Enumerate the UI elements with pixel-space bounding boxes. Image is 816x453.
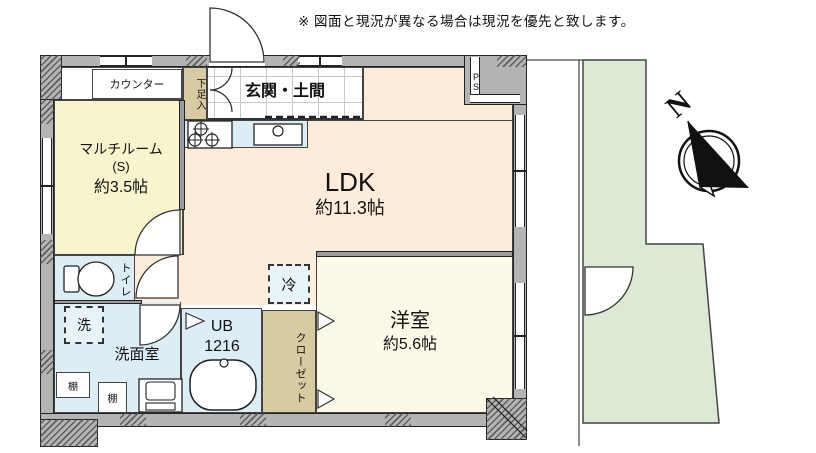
garden-name: 専用庭: [589, 336, 709, 354]
refrigerator-label: 冷: [281, 274, 296, 295]
window-top-2: [298, 56, 342, 66]
wall-bottom: [40, 413, 527, 427]
kitchen-counter: [183, 120, 308, 148]
shelf-b-label: 棚: [108, 390, 118, 405]
shoe-cabinet-label: 下足入: [185, 71, 205, 117]
compass-north-label: N: [660, 85, 698, 124]
entrance-opening: [209, 56, 265, 66]
hatch-mark: [240, 413, 266, 427]
garden-door-arc: [585, 267, 633, 315]
hatch-mark: [40, 100, 54, 124]
western-room: [316, 255, 513, 413]
disclaimer-text: ※ 図面と現況が異なる場合は現況を優先と致します。: [298, 14, 635, 30]
window-right-ldk: [515, 115, 525, 227]
hatch-mark: [40, 419, 98, 447]
hatch-mark: [186, 55, 207, 67]
western-room-area: 約5.6帖: [350, 336, 470, 354]
entrance-name: 玄関・土間: [215, 83, 355, 101]
window-right-western: [515, 283, 525, 389]
window-left-multiroom: [42, 138, 52, 234]
shelf-a: 棚: [56, 372, 90, 398]
compass-icon: N: [660, 85, 749, 196]
hatch-mark: [385, 413, 411, 427]
refrigerator-space: 冷: [268, 264, 310, 304]
counter-label: カウンター: [110, 76, 165, 92]
multi-room-name: マルチルーム: [64, 141, 178, 157]
garden-area: 10.19m²: [589, 356, 709, 373]
hatch-mark: [486, 398, 527, 440]
entrance-door-arc: [210, 8, 264, 62]
hatch-mark: [497, 55, 526, 67]
closet-name: クローゼット: [270, 326, 308, 410]
hatch-mark: [120, 413, 146, 427]
window-top-1: [100, 56, 152, 66]
multi-room-area: 約3.5帖: [64, 179, 178, 197]
washer-space: 洗: [64, 306, 104, 344]
hatch-mark: [40, 240, 54, 264]
ldk-area: 約11.3帖: [288, 198, 412, 219]
washer-label: 洗: [77, 315, 91, 335]
unit-bath-size: 1216: [186, 338, 258, 356]
hatch-mark: [283, 55, 300, 67]
unit-bath-name: UB: [186, 318, 258, 336]
ldk-western-divider: [316, 251, 513, 257]
hatch-mark: [40, 350, 54, 374]
shelf-a-label: 棚: [68, 378, 78, 393]
multi-room: [54, 100, 183, 255]
toilet-name: トイレ: [113, 258, 131, 302]
western-room-name: 洋室: [350, 310, 470, 333]
floor-plan-page: ※ 図面と現況が異なる場合は現況を優先と致します。 カウンター PS: [0, 0, 816, 453]
ldk-name: LDK: [288, 168, 412, 198]
shelf-b: 棚: [98, 382, 127, 413]
washroom-name: 洗面室: [92, 346, 182, 363]
pipe-space-label: PS: [469, 66, 481, 98]
counter-box: カウンター: [92, 69, 182, 99]
hatch-mark: [40, 55, 62, 100]
multi-room-annex: (S): [64, 160, 178, 175]
